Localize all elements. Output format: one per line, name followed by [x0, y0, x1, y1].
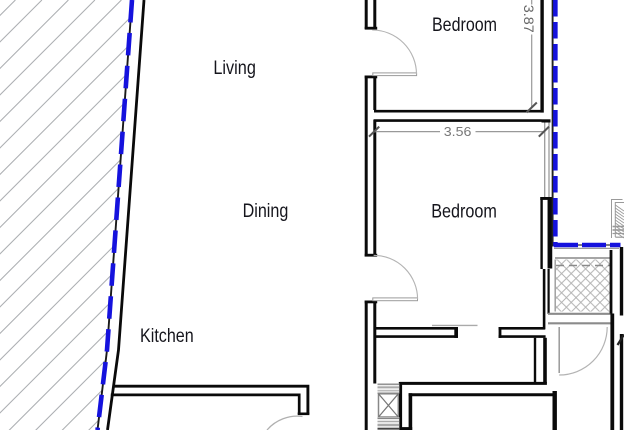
svg-text:Kitchen: Kitchen	[140, 325, 194, 347]
svg-text:Bedroom: Bedroom	[432, 14, 497, 36]
svg-text:3.56: 3.56	[444, 124, 472, 139]
svg-text:3.87: 3.87	[521, 5, 536, 33]
svg-text:Dining: Dining	[243, 200, 289, 222]
svg-text:Living: Living	[213, 57, 256, 79]
svg-text:Bedroom: Bedroom	[431, 200, 497, 222]
